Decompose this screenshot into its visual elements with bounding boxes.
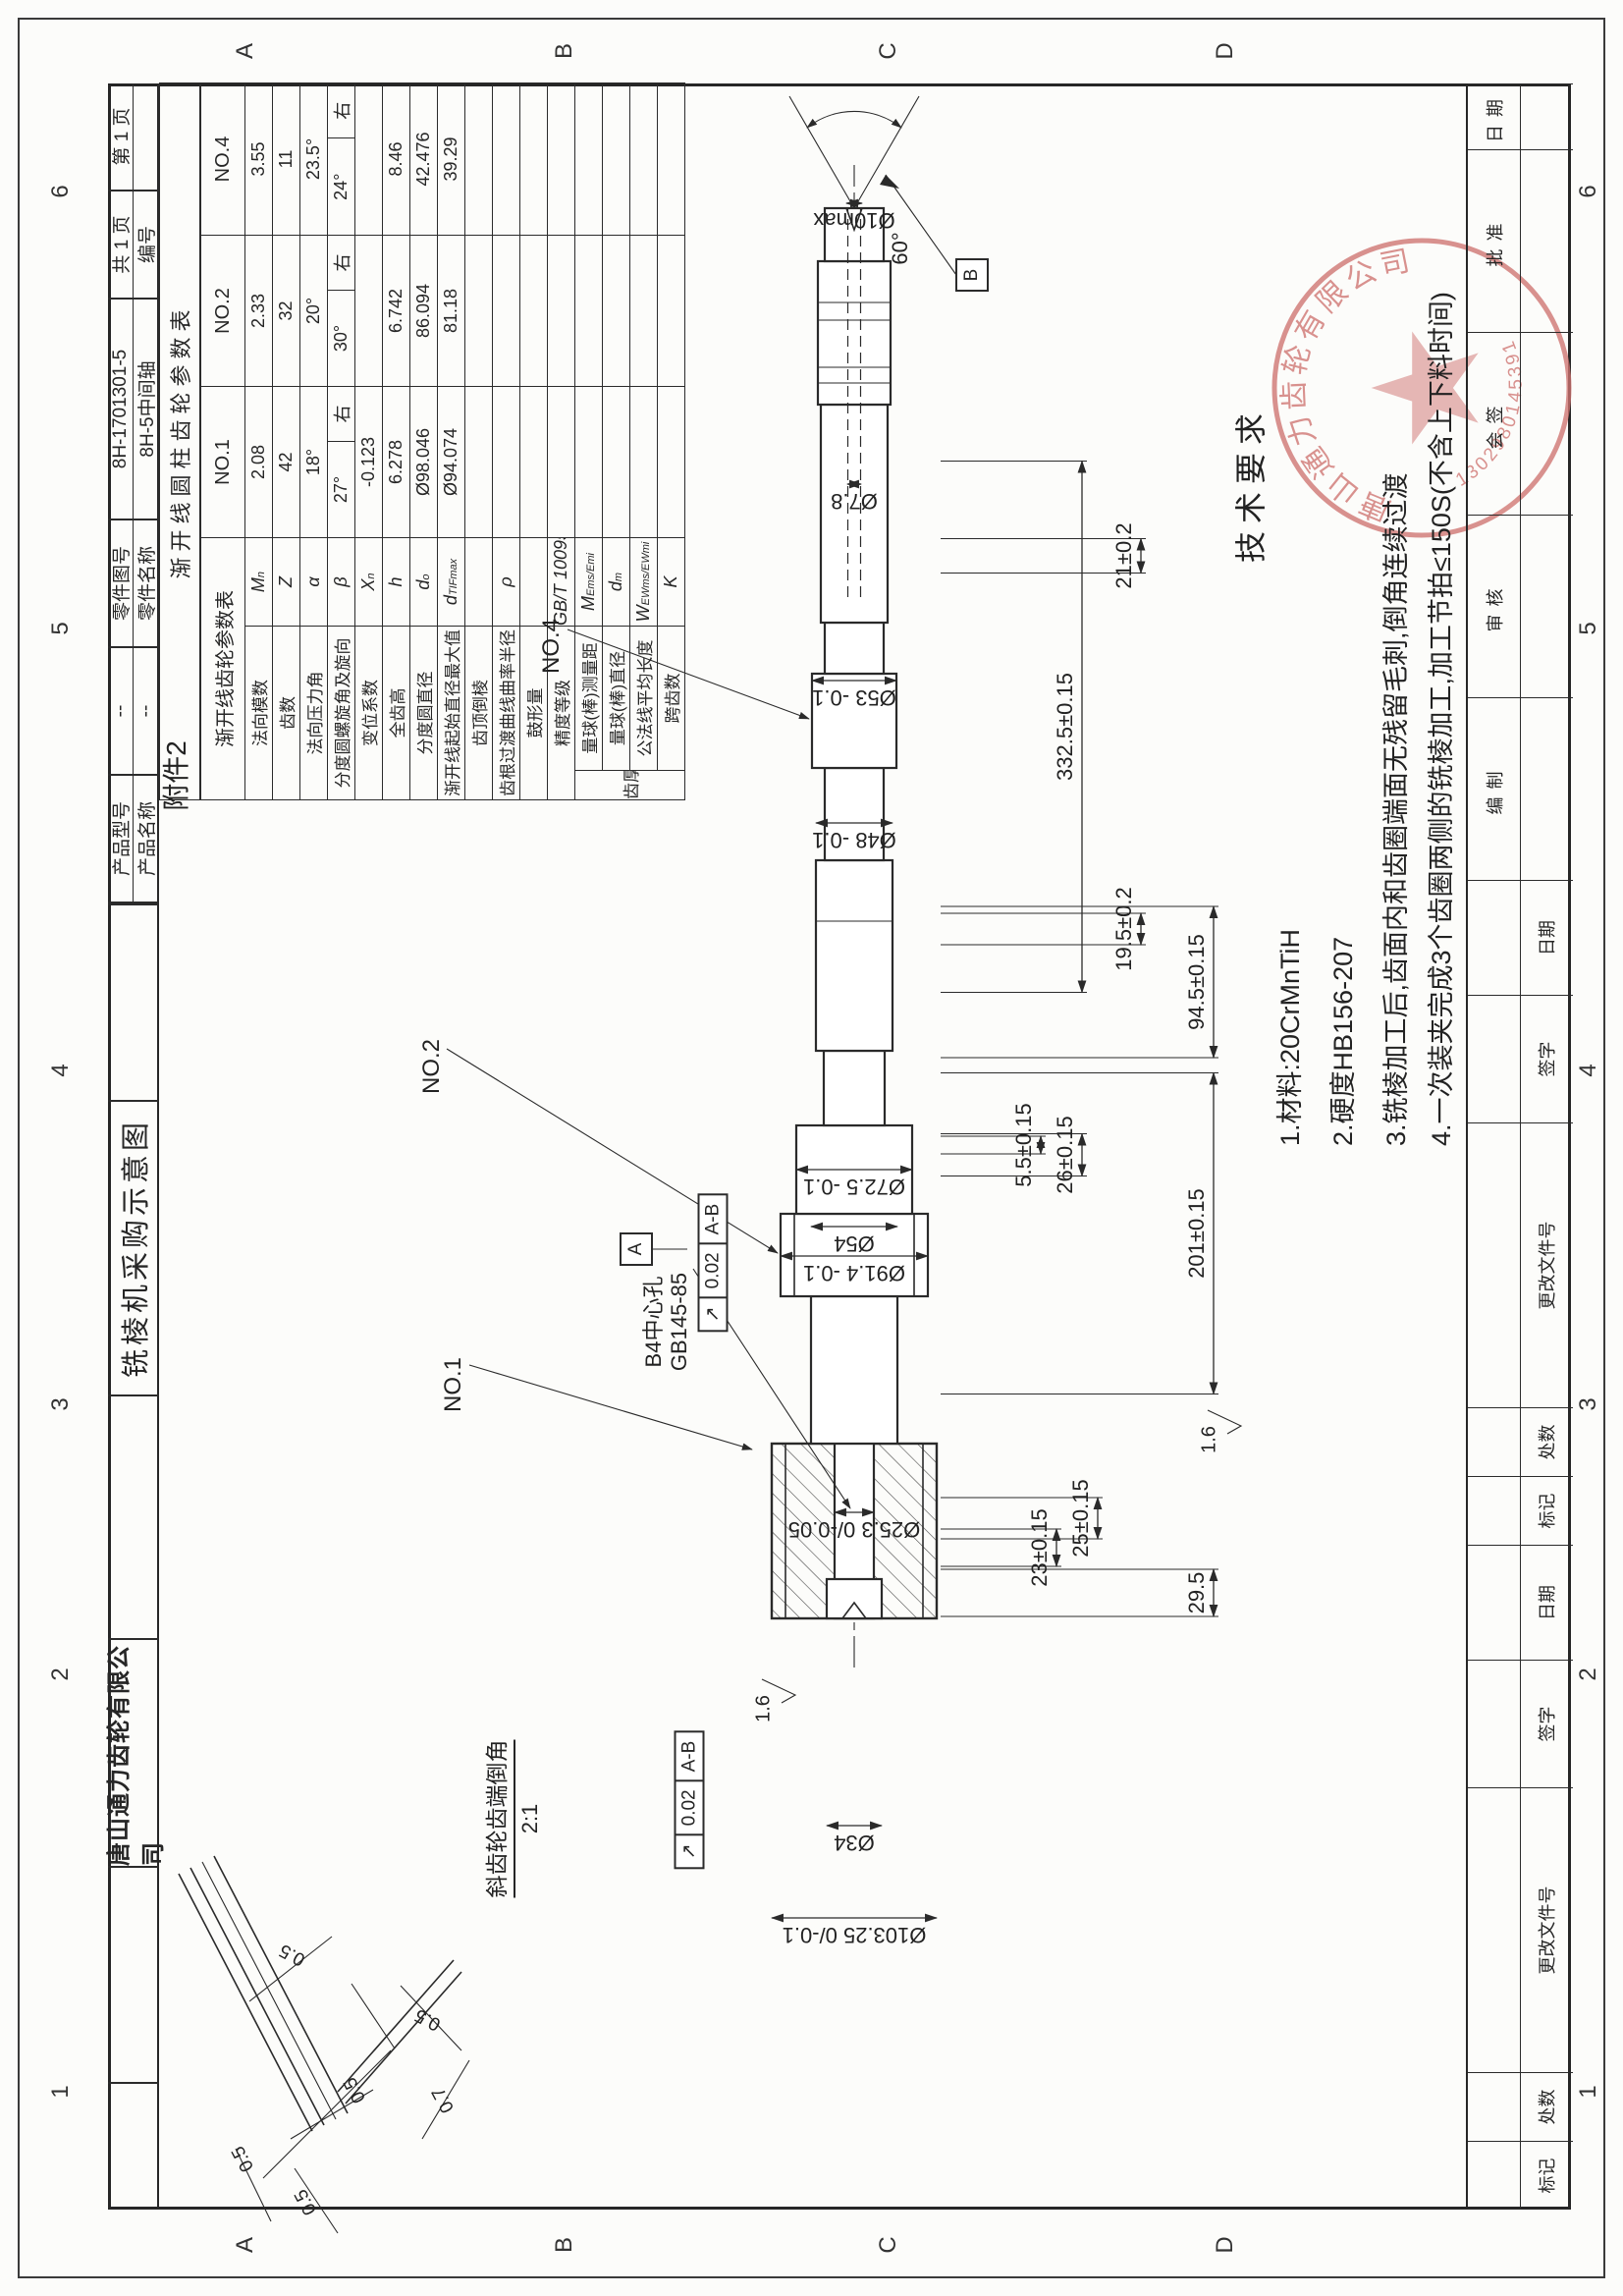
revision-empty-cell [1468,1545,1520,1660]
signature-empty-cell [1520,515,1573,697]
revision-empty-cell [1468,995,1520,1122]
revision-empty-cell [1468,1660,1520,1787]
signature-empty-cell [1520,332,1573,515]
dimension-label: 25±0.15 [1068,1479,1094,1557]
drawing-label: NO.4 [538,619,566,674]
signature-label: 会签 [1468,332,1520,515]
datum-reference: A-B [700,1196,727,1243]
dimension-label: 332.5±0.15 [1053,673,1078,781]
revision-col-label: 日期 [1520,880,1573,995]
annotations-layer: 23±0.1525±0.155.5±0.1526±0.15332.5±0.151… [0,0,1623,2296]
drawing-label: GB145-85 [667,1273,692,1371]
dimension-label: 5.5±0.15 [1011,1103,1037,1186]
diameter-label: Ø10max [813,207,894,233]
detail-dimension-label: 0.5 [411,2003,445,2035]
diameter-label: Ø48 -0.1 [812,827,896,852]
drawing-label: NO.1 [440,1357,467,1412]
signature-empty-cell [1520,83,1573,149]
revision-empty-cell [1468,1407,1520,1476]
revision-signature-strip: 标记处数更改文件号签字日期标记处数更改文件号签字日期编制审核会签批准日期 [1466,83,1571,2210]
revision-col-label: 签字 [1520,995,1573,1122]
signature-empty-cell [1520,697,1573,880]
diameter-label: Ø7.8 [831,488,878,514]
dimension-label: 94.5±0.15 [1184,934,1210,1030]
revision-col-label: 处数 [1520,2072,1573,2141]
runout-symbol-icon: ↗ [700,1296,727,1330]
signature-empty-cell [1520,149,1573,332]
drawing-sheet: 112233445566AABBCCDD .w{fill:#ffffff;str… [0,0,1623,2296]
datum-reference: A-B [676,1733,703,1780]
revision-col-label: 处数 [1520,1407,1573,1476]
revision-empty-cell [1468,2141,1520,2210]
diameter-label: Ø25.3 0/-0.05 [788,1516,921,1542]
geometric-tolerance-frame: ↗0.02A-B [698,1194,729,1333]
diameter-label: Ø91.4 -0.1 [803,1260,905,1285]
revision-empty-cell [1468,1787,1520,2072]
diameter-label: Ø72.5 -0.1 [803,1174,905,1199]
revision-col-label: 更改文件号 [1520,1787,1573,2072]
diameter-label: Ø103.25 0/-0.1 [783,1922,927,1947]
drawing-label: 60° [888,232,913,264]
tolerance-value: 0.02 [676,1779,703,1833]
dimension-label: 19.5±0.2 [1111,887,1137,970]
diameter-label: Ø54 [834,1230,875,1256]
runout-symbol-icon: ↗ [676,1833,703,1867]
dimension-label: 21±0.2 [1111,522,1137,588]
revision-col-label: 日期 [1520,1545,1573,1660]
revision-empty-cell [1468,880,1520,995]
signature-label: 批准 [1468,149,1520,332]
dimension-label: 26±0.15 [1053,1116,1078,1193]
tolerance-value: 0.02 [700,1242,727,1296]
drawing-label: 1.6 [753,1695,776,1722]
dimension-label: 23±0.15 [1027,1508,1053,1586]
signature-label: 审核 [1468,515,1520,697]
drawing-label: NO.2 [418,1039,446,1094]
detail-dimension-label: 0.5 [228,2142,259,2175]
datum-label: B [955,258,989,292]
geometric-tolerance-frame: ↗0.02A-B [675,1731,705,1870]
detail-dimension-label: 0.7 [428,2083,460,2116]
diameter-label: Ø53 -0.1 [812,684,896,710]
diameter-label: Ø34 [834,1830,875,1855]
datum-label: A [620,1232,653,1266]
revision-empty-cell [1468,1122,1520,1407]
detail-dimension-label: 0.5 [340,2073,371,2106]
detail-dimension-label: 0.5 [276,1939,309,1970]
dimension-label: 201±0.15 [1184,1188,1210,1279]
detail-dimension-label: 0.5 [291,2185,322,2218]
drawing-label: B4中心孔 [636,1277,668,1368]
drawing-label: 1.6 [1199,1426,1221,1453]
revision-col-label: 标记 [1520,2141,1573,2210]
revision-col-label: 签字 [1520,1660,1573,1787]
revision-empty-cell [1468,2072,1520,2141]
dimension-label: 29.5 [1184,1572,1210,1614]
signature-label: 编制 [1468,697,1520,880]
revision-col-label: 更改文件号 [1520,1122,1573,1407]
revision-col-label: 标记 [1520,1476,1573,1545]
revision-empty-cell [1468,1476,1520,1545]
signature-label: 日期 [1468,83,1520,149]
